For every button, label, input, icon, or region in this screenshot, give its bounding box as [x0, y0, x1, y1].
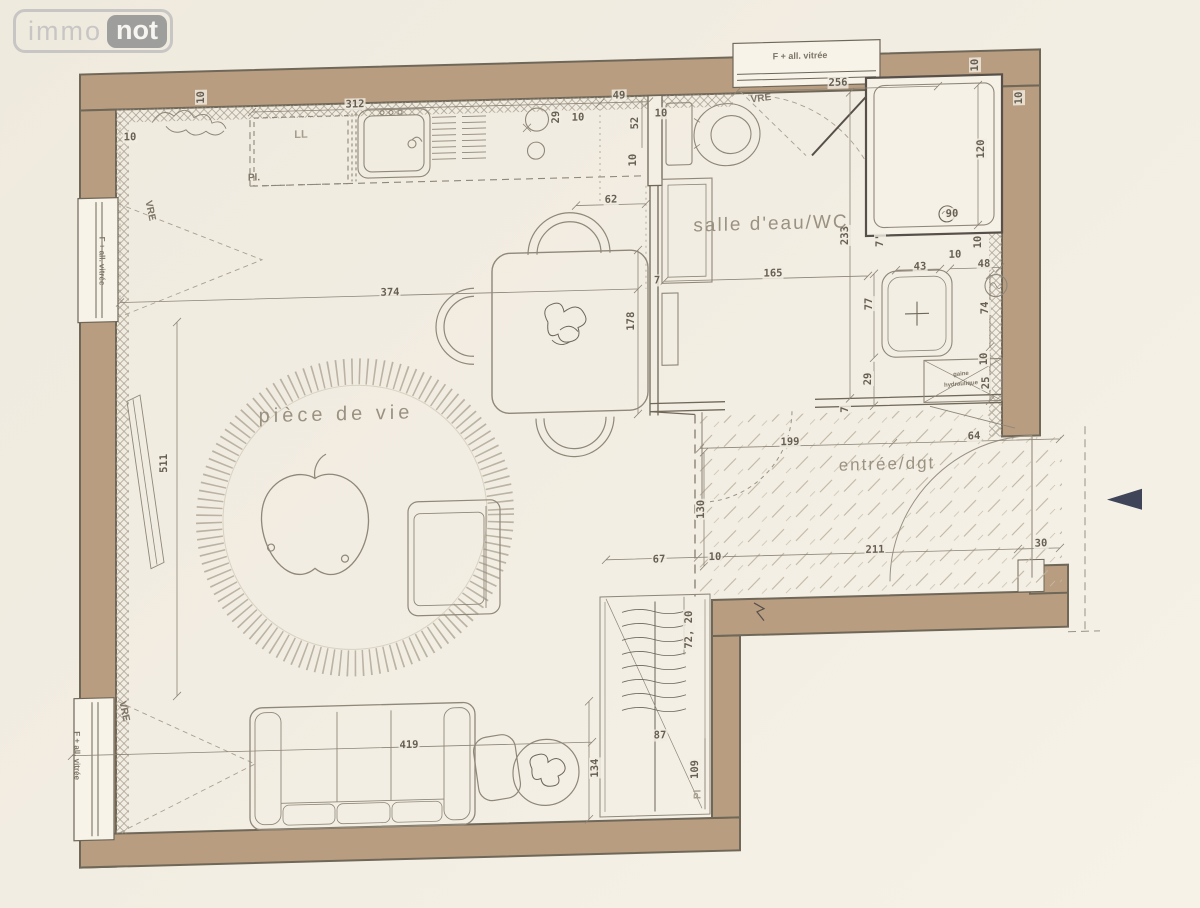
dimension-label: 7'	[874, 233, 886, 248]
duct-label-line1: gaine	[953, 371, 969, 378]
entry-closet-label: Pl	[693, 790, 704, 800]
dimension-label: 67	[652, 553, 667, 565]
dimension-label: 30	[1034, 537, 1049, 549]
room-label-bathroom: salle d'eau/WC	[693, 211, 848, 237]
dimension-label: 10	[972, 235, 984, 250]
dimension-label: 43	[913, 260, 928, 272]
room-label-entry: entrée/dgt	[839, 453, 936, 476]
dimension-label: 87	[653, 729, 668, 741]
window-label-left-lower: F + all. vitrée	[73, 731, 82, 780]
dimension-label: 72, 20	[683, 609, 695, 649]
label-layer: 3124929105210106225610101209010102331657…	[0, 0, 1200, 908]
dimension-label: 62	[604, 193, 619, 205]
dimension-label: 7	[839, 405, 851, 414]
dimension-label: 64	[967, 430, 982, 442]
dimension-label: 10	[1013, 90, 1025, 105]
dimension-label: 374	[380, 286, 401, 299]
washing-machine-label: LL	[294, 129, 307, 141]
window-label-left-upper: F + all. vitrée	[98, 237, 107, 286]
dimension-label: 29	[550, 110, 562, 125]
dimension-label: 90	[945, 208, 960, 220]
dimension-label: 211	[865, 543, 886, 556]
dimension-label: 25	[980, 375, 992, 390]
dimension-label: 10	[571, 111, 586, 123]
dimension-label: 10	[627, 153, 639, 168]
kitchen-closet-label: Pl.	[248, 172, 260, 183]
floorplan-scan: immo not	[0, 0, 1200, 908]
dimension-label: 7	[653, 274, 661, 286]
dimension-label: 48	[977, 258, 992, 270]
shutter-label-left-upper: VRE	[142, 199, 157, 222]
dimension-label: 52	[629, 116, 641, 131]
dimension-label: 74	[979, 300, 991, 315]
dimension-label: 419	[399, 739, 420, 752]
dimension-label: 49	[612, 89, 627, 101]
dimension-label: 511	[158, 453, 170, 474]
dimension-label: 256	[828, 76, 849, 89]
dimension-label: 10	[978, 351, 990, 366]
dimension-label: 77	[863, 296, 875, 311]
dimension-label: 109	[689, 759, 701, 780]
shutter-label-left-lower: VRE	[116, 700, 131, 723]
dimension-label: 130	[695, 499, 707, 520]
duct-label-line2: hydraulique	[944, 380, 978, 389]
dimension-label: 312	[345, 98, 366, 111]
dimension-label: 134	[589, 757, 601, 778]
dimension-label: 10	[195, 90, 207, 105]
dimension-label: 10	[969, 58, 981, 73]
window-label-top: F + all. vitrée	[773, 50, 828, 61]
dimension-label: 165	[763, 267, 784, 280]
dimension-label: 10	[948, 248, 963, 260]
dimension-label: 10	[708, 551, 723, 563]
dimension-label: 10	[123, 131, 138, 143]
dimension-label: 199	[780, 436, 801, 449]
dimension-label: 29	[862, 371, 874, 386]
dimension-label: 178	[625, 310, 637, 331]
shutter-label-top: VRE	[750, 92, 772, 106]
dimension-label: 120	[975, 138, 987, 159]
dimension-label: 10	[654, 107, 669, 119]
room-label-living: pièce de vie	[259, 401, 414, 428]
